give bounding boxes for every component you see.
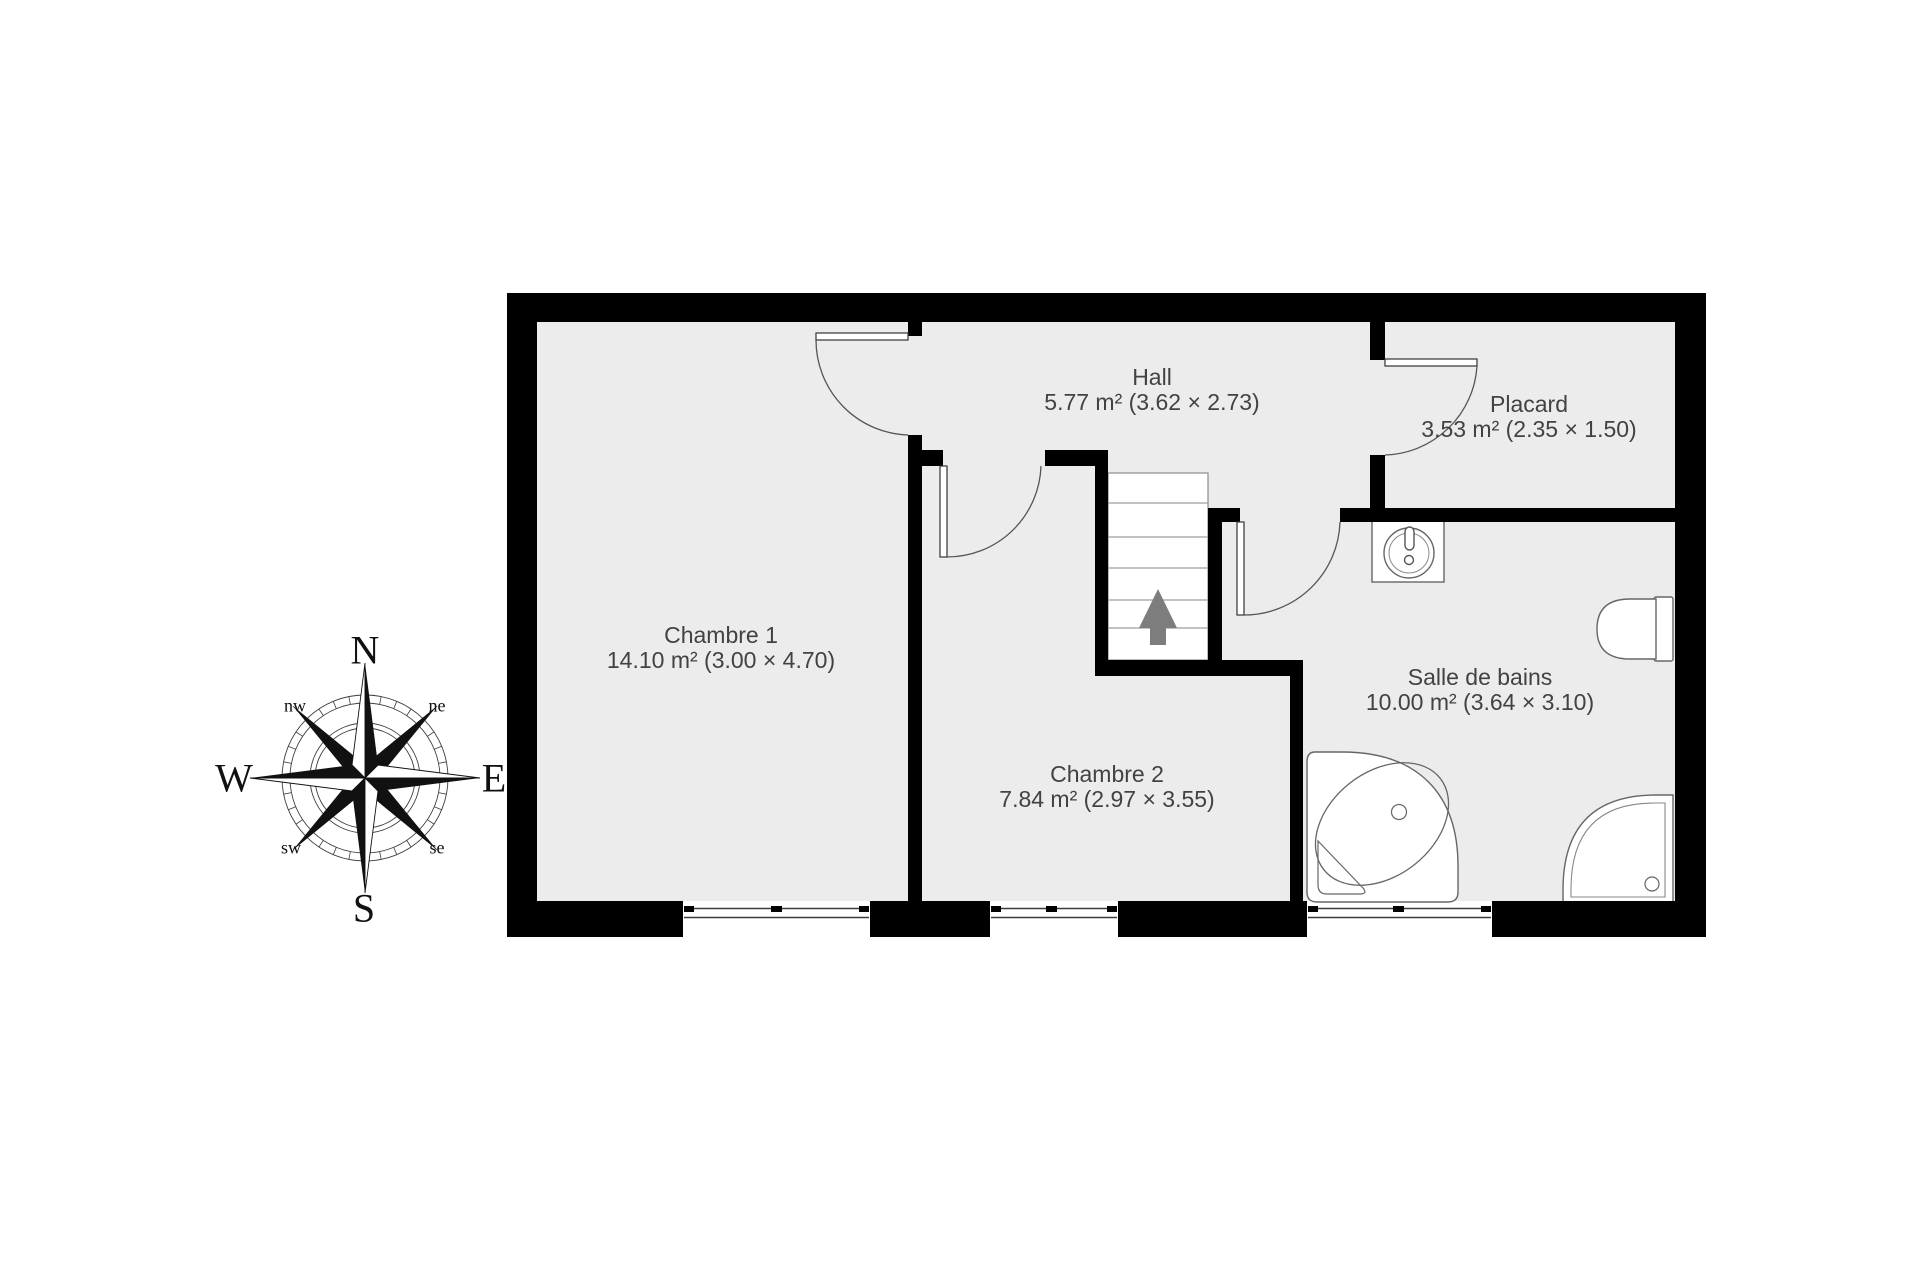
floor-plan-drawing — [0, 0, 1920, 1280]
room-label-placard: Placard 3.53 m² (2.35 × 1.50) — [1421, 392, 1636, 442]
wall-stairwell-right — [1208, 508, 1222, 660]
wall-outer-bottom — [507, 901, 683, 937]
room-label-chambre-1: Chambre 1 14.10 m² (3.00 × 4.70) — [607, 623, 835, 673]
wall-bathroom-top — [1340, 508, 1675, 522]
wall-chambre2-bathroom — [1290, 660, 1303, 901]
sink — [1372, 521, 1444, 582]
room-area: 3.53 m² (2.35 × 1.50) — [1421, 417, 1636, 442]
room-name: Chambre 2 — [999, 762, 1214, 787]
wall-outer-right — [1675, 293, 1706, 937]
room-area: 5.77 m² (3.62 × 2.73) — [1044, 390, 1259, 415]
room-name: Placard — [1421, 392, 1636, 417]
wall-bath-door-jamb — [1208, 508, 1240, 522]
compass-label-southwest: sw — [281, 838, 301, 859]
compass-label-west: W — [215, 755, 253, 802]
room-area: 14.10 m² (3.00 × 4.70) — [607, 648, 835, 673]
room-name: Salle de bains — [1366, 665, 1594, 690]
window-chambre1 — [684, 906, 869, 918]
windows — [684, 906, 1491, 918]
compass-label-northeast: ne — [429, 696, 446, 717]
wall-chambre1-hall — [908, 322, 922, 336]
wall-hall-placard — [1370, 455, 1385, 521]
wall-chambre2-top — [1045, 450, 1108, 466]
room-label-chambre-2: Chambre 2 7.84 m² (2.97 × 3.55) — [999, 762, 1214, 812]
room-area: 7.84 m² (2.97 × 3.55) — [999, 787, 1214, 812]
compass-label-northwest: nw — [284, 696, 306, 717]
wall-stairwell-left — [1095, 466, 1108, 676]
wall-outer-bottom — [1492, 901, 1706, 937]
toilet — [1597, 597, 1673, 661]
wall-outer-top — [507, 293, 1706, 322]
room-label-salle-de-bains: Salle de bains 10.00 m² (3.64 × 3.10) — [1366, 665, 1594, 715]
stairs — [1108, 473, 1208, 660]
wall-hall-placard — [1370, 322, 1385, 360]
room-area: 10.00 m² (3.64 × 3.10) — [1366, 690, 1594, 715]
compass-label-southeast: se — [430, 838, 445, 859]
wall-chambre1-hall — [908, 435, 922, 901]
wall-stairwell-bottom — [1095, 660, 1290, 676]
compass-label-south: S — [353, 885, 375, 932]
compass-label-north: N — [351, 627, 380, 674]
room-name: Chambre 1 — [607, 623, 835, 648]
wall-chambre2-top — [922, 450, 943, 466]
wall-outer-left — [507, 293, 537, 937]
room-name: Hall — [1044, 365, 1259, 390]
wall-outer-bottom — [870, 901, 990, 937]
wall-outer-bottom — [1118, 901, 1307, 937]
compass-label-east: E — [482, 755, 506, 802]
window-chambre2 — [991, 906, 1117, 918]
window-bathroom — [1308, 906, 1491, 918]
room-label-hall: Hall 5.77 m² (3.62 × 2.73) — [1044, 365, 1259, 415]
floor-plan-page: Chambre 1 14.10 m² (3.00 × 4.70) Hall 5.… — [0, 0, 1920, 1280]
